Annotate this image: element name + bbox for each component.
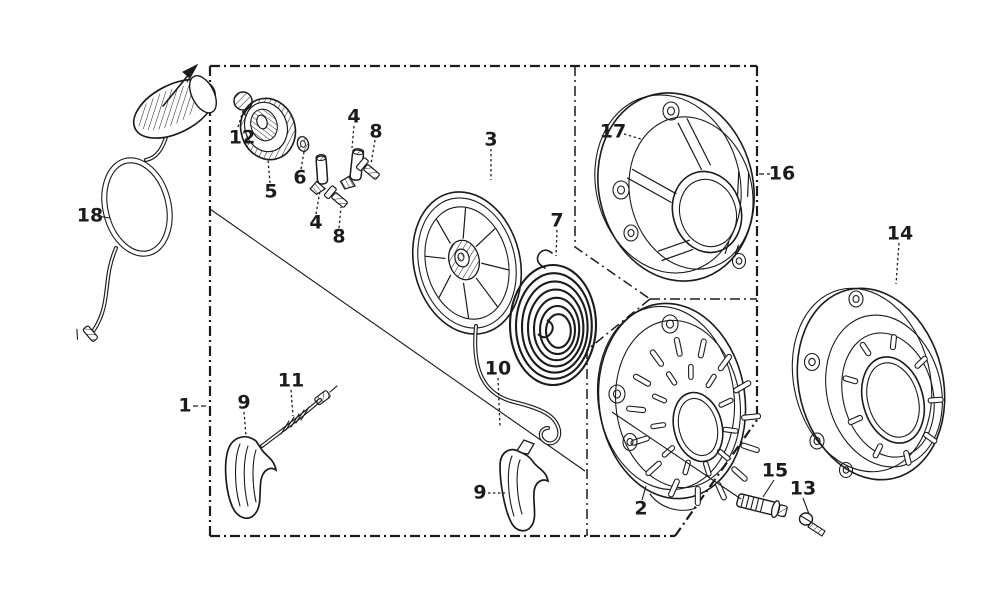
callout-18: 18 <box>77 205 103 227</box>
callout-17: 17 <box>600 121 626 143</box>
part-17-starter-cover <box>576 76 773 298</box>
part-13-screw <box>800 513 826 536</box>
callout-4: 4 <box>309 212 322 234</box>
starter-grip-top <box>124 65 224 150</box>
part-11-rope-with-spring <box>262 386 337 446</box>
callout-11: 11 <box>278 370 304 392</box>
part-9-grip-bottom <box>500 440 548 531</box>
part-7-recoil-spring <box>510 250 596 385</box>
callout-15: 15 <box>762 460 788 482</box>
callout-1: 1 <box>178 395 191 417</box>
callout-9: 9 <box>237 392 250 414</box>
callout-12: 12 <box>229 127 255 149</box>
callout-2: 2 <box>634 498 647 520</box>
callout-number-layer: 123445678899101112131415161718 <box>77 106 913 520</box>
callout-6: 6 <box>293 167 306 189</box>
callout-13: 13 <box>790 478 816 500</box>
callout-16: 16 <box>769 163 795 185</box>
callout-3: 3 <box>484 129 497 151</box>
part-9-grip-left <box>226 437 276 518</box>
callout-9: 9 <box>473 482 486 504</box>
callout-10: 10 <box>485 358 511 380</box>
callout-8: 8 <box>332 226 345 248</box>
callout-4: 4 <box>347 106 360 128</box>
parts-diagram-page: 123445678899101112131415161718 <box>0 0 1000 614</box>
callout-8: 8 <box>369 121 382 143</box>
part-14-starter-cover <box>774 272 965 495</box>
callout-7: 7 <box>550 210 563 232</box>
part-4-pawl-lower <box>308 154 329 195</box>
callout-5: 5 <box>264 181 277 203</box>
part-6-washer <box>296 135 311 152</box>
part-15-bolt <box>736 491 789 520</box>
callout-14: 14 <box>887 223 913 245</box>
parts-diagram-canvas: 123445678899101112131415161718 <box>0 0 1000 614</box>
